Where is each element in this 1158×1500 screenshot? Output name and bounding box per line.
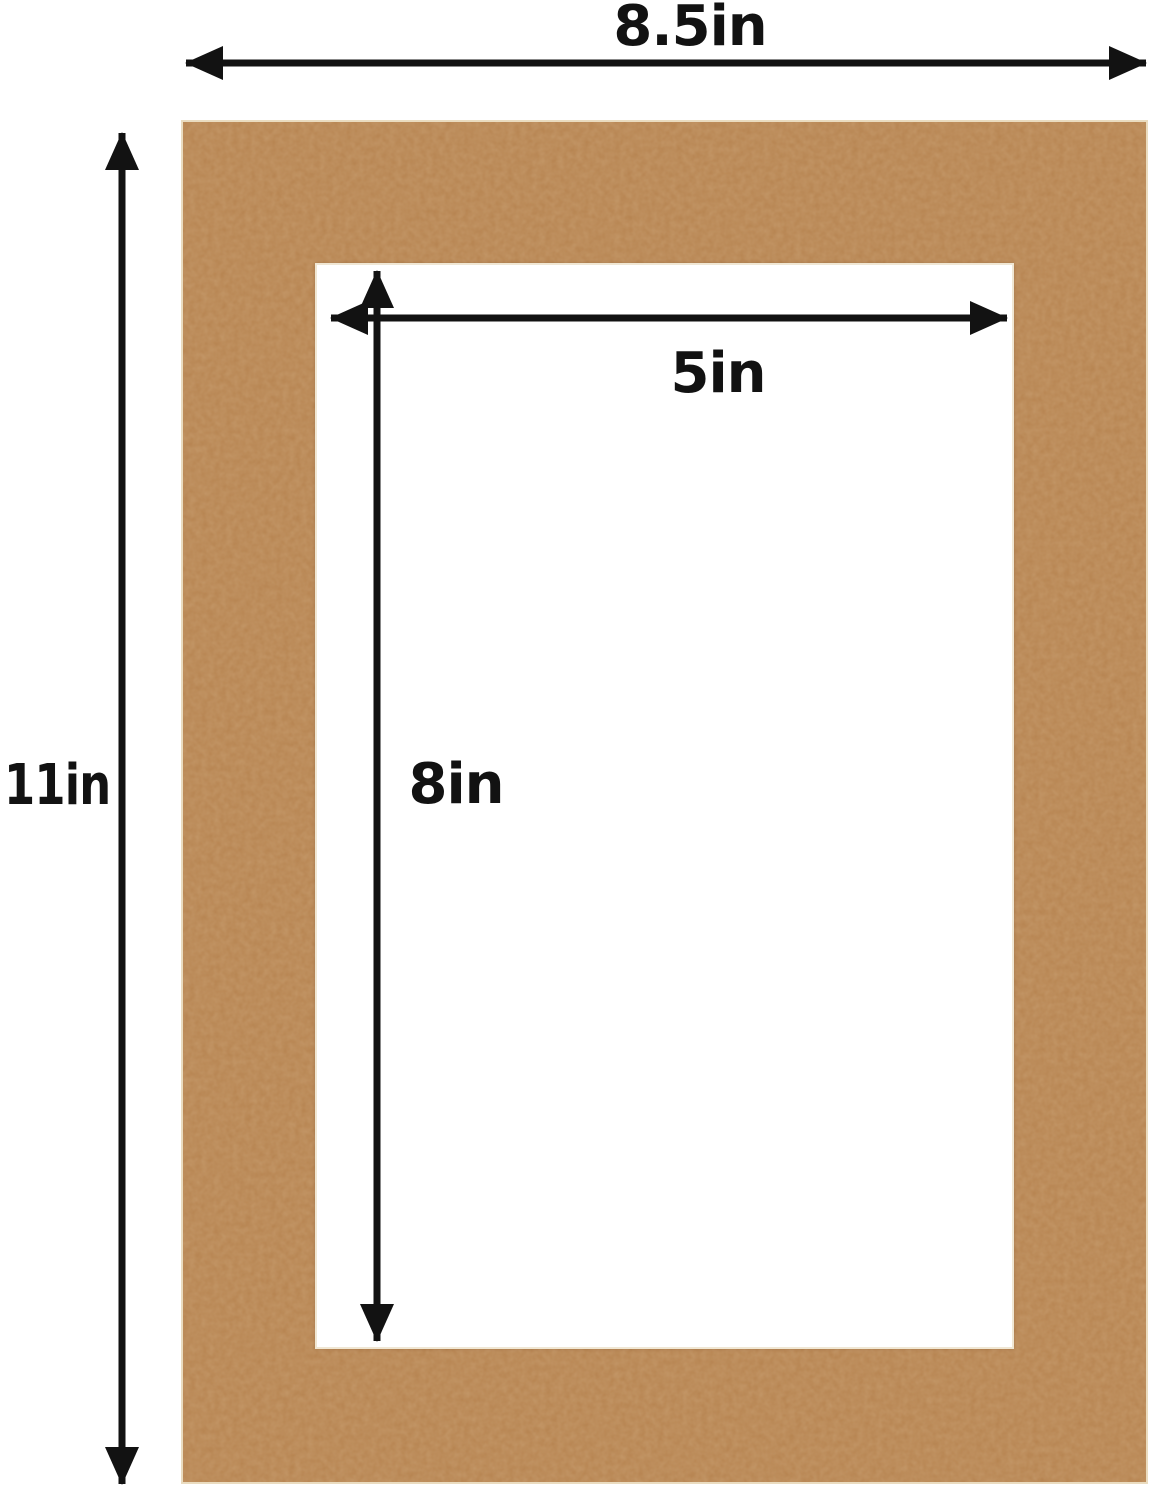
mat-diagram: 8.5in 11in 5in 8in — [0, 0, 1158, 1500]
opening-height-label: 8in — [408, 757, 503, 813]
mat-board — [181, 120, 1148, 1484]
outer-width-label: 8.5in — [613, 0, 766, 55]
opening-width-label: 5in — [670, 346, 765, 402]
outer-height-label: 11in — [4, 758, 110, 814]
